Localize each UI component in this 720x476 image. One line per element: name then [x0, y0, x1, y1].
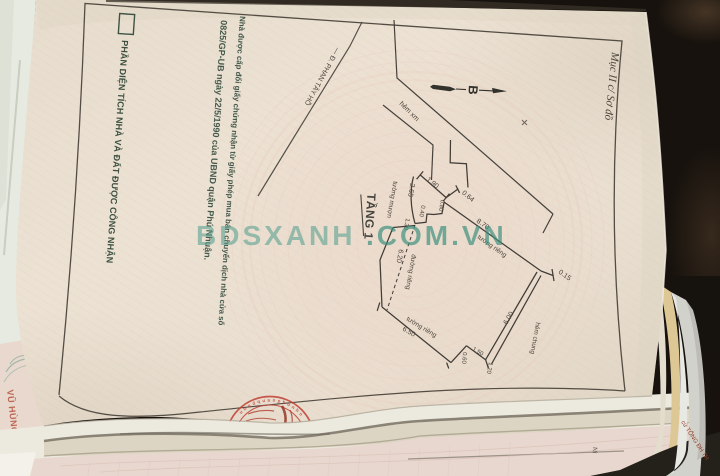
svg-text:BDSXANH: BDSXANH — [196, 220, 355, 251]
svg-text:B: B — [465, 85, 481, 95]
svg-text:0.60: 0.60 — [460, 352, 467, 365]
svg-text:n: n — [272, 398, 275, 403]
svg-text:.COM.VN: .COM.VN — [366, 220, 507, 251]
